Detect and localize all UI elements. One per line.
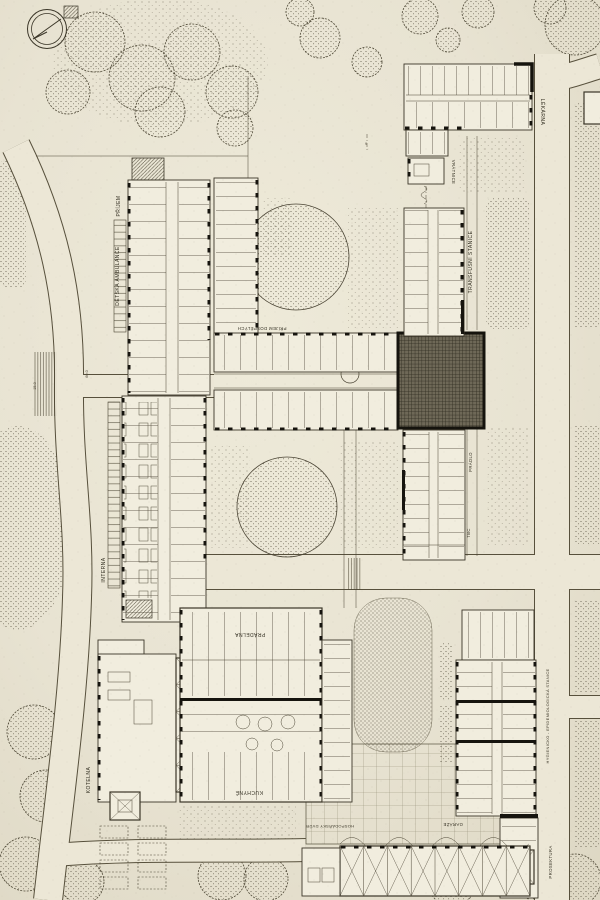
label-prosektura: PROSEKTURA <box>548 845 553 878</box>
label-pradelna: PRÁDELNA <box>235 631 266 638</box>
crosswalk <box>347 558 361 590</box>
label-garaze: GARÁŽE <box>443 822 463 827</box>
building-transfusion-station <box>404 208 464 336</box>
label-hygienicka-stanice: HYGIENICKO - EPIDEMIOLOGICKÁ STANICE <box>545 668 550 763</box>
building-interna <box>108 396 206 622</box>
label-tbc: TBC <box>466 528 471 538</box>
building-hygiene-station <box>456 610 536 816</box>
dim-axis-9: 9 <box>365 142 367 146</box>
label-kotelna: KOTELNA <box>86 767 92 794</box>
building-pradlo-tbc <box>402 430 465 560</box>
label-transfusni-stanice: TRANSFUSNÍ STANICE <box>467 230 474 293</box>
label-prijem-dospelych: PŘÍJEM DOSPĚLÝCH <box>237 326 286 331</box>
label-lekarna: LÉKÁRNA <box>539 99 546 126</box>
label-interna: INTERNA <box>101 557 107 582</box>
label-kuchyne: KUCHYNĚ <box>235 789 263 797</box>
dim-60: 60.0 <box>85 370 89 377</box>
label-prijem: PŘÍJEM <box>114 195 122 216</box>
site-plan-canvas: PŘÍJEM DĚTSKÁ AMBULANCE INTERNA PŘÍJEM D… <box>0 0 600 900</box>
dark-atrium-court <box>398 333 484 428</box>
label-detska-ambulance: DĚTSKÁ AMBULANCE <box>113 246 121 306</box>
label-pradlo: PRÁDLO <box>468 452 473 472</box>
label-vratnice: VRÁTNICE <box>451 160 456 185</box>
architectural-site-plan: PŘÍJEM DĚTSKÁ AMBULANCE INTERNA PŘÍJEM D… <box>0 0 600 900</box>
dim-15: 15.0 <box>33 382 37 389</box>
label-hospodarsky-dvur: HOSPODÁŘSKÝ DVŮR <box>306 824 354 829</box>
